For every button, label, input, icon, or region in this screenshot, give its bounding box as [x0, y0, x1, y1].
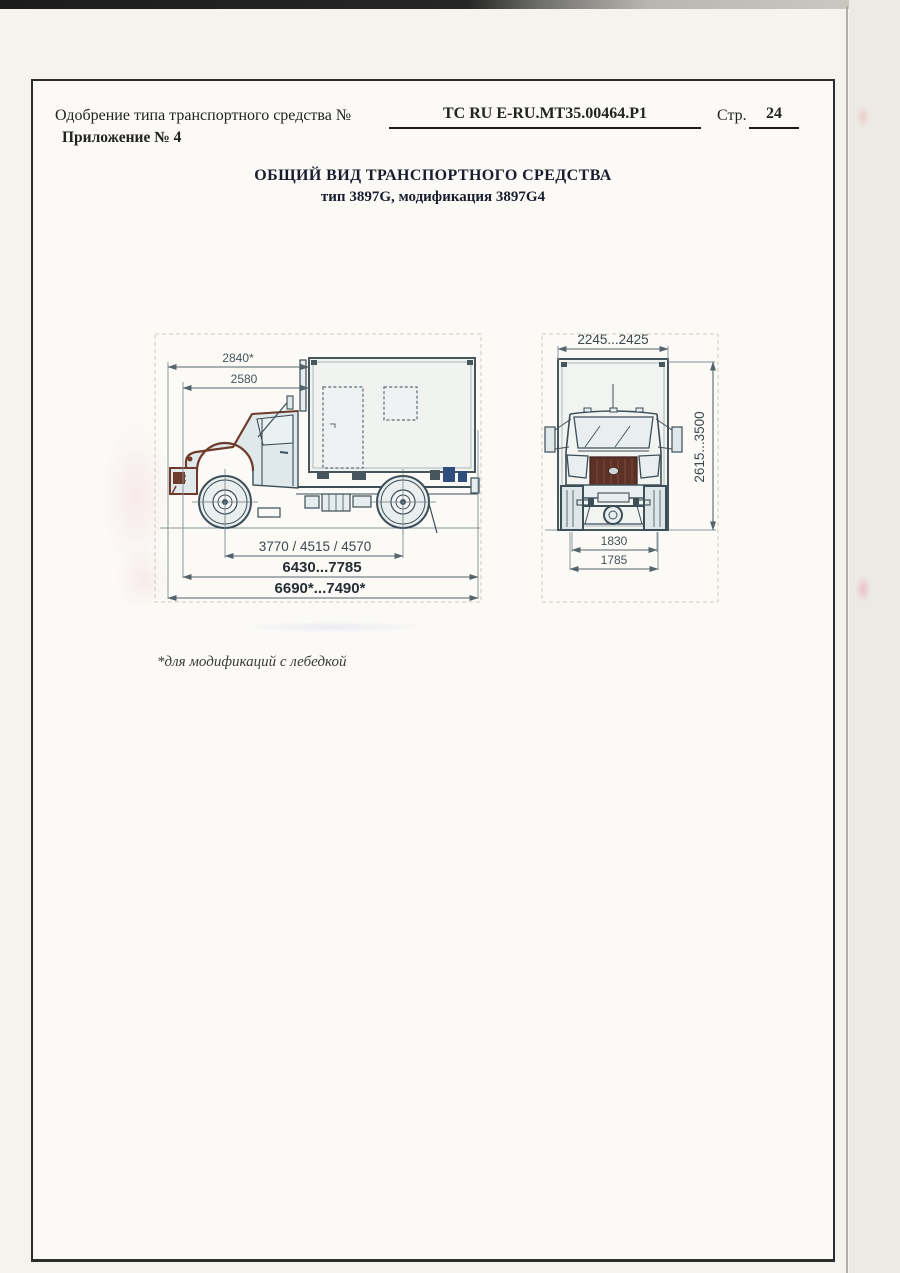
headlight-right	[639, 455, 660, 478]
scan-noise-blob	[238, 621, 428, 633]
dim-wheelbase: 3770 / 4515 / 4570	[259, 539, 372, 554]
differential	[604, 506, 622, 524]
scan-edge-artifact	[0, 0, 900, 9]
windshield	[574, 417, 653, 448]
dim-overall-length: 6430...7785	[282, 559, 361, 576]
dim-cab-to-body-winch: 2840*	[222, 351, 254, 365]
gaz-emblem	[609, 467, 619, 474]
page-label: Стр.	[717, 107, 747, 125]
mirror-left	[545, 427, 555, 452]
rear-equipment-blue	[443, 467, 455, 482]
approval-number: ТС RU E-RU.MT35.00464.P1	[389, 105, 701, 129]
box-window-dashed	[384, 387, 417, 420]
page-subtitle: тип 3897G, модификация 3897G4	[33, 189, 833, 206]
attachment-label: Приложение № 4	[62, 129, 181, 147]
page-title: ОБЩИЙ ВИД ТРАНСПОРТНОГО СРЕДСТВА	[33, 167, 833, 185]
dim-track-outer: 1830	[601, 534, 628, 548]
cab-step	[258, 508, 280, 517]
air-intake-snorkel	[300, 360, 306, 411]
wheel-left	[561, 486, 583, 530]
headlight-left	[567, 455, 588, 478]
box-side-door-dashed	[323, 387, 363, 468]
footnote: *для модификаций с лебедкой	[157, 654, 347, 671]
dim-overall-width: 2245...2425	[577, 332, 648, 347]
dim-cab-to-body: 2580	[231, 372, 258, 386]
wheel-right	[644, 486, 666, 530]
vehicle-drawing: 2840* 2580 3770 / 4515 / 4570 6430...778…	[150, 330, 730, 620]
dim-track: 1785	[601, 553, 628, 567]
dim-overall-height: 2615...3500	[692, 411, 707, 482]
box-body	[309, 358, 475, 472]
approval-label: Одобрение типа транспортного средства №	[55, 107, 351, 125]
mirror-glass	[287, 396, 293, 409]
title-block: ОБЩИЙ ВИД ТРАНСПОРТНОГО СРЕДСТВА тип 389…	[33, 167, 833, 206]
front-view: 2245...2425 2615...3500 1830 1785	[545, 332, 716, 570]
headlamp	[188, 457, 193, 462]
door-handle	[280, 452, 288, 453]
side-view: 2840* 2580 3770 / 4515 / 4570 6430...778…	[160, 351, 480, 599]
scanned-document-page: { "header": { "approval_label": "Одобрен…	[0, 0, 900, 1273]
page-right-margin	[849, 0, 900, 1273]
rear-equipment-blue	[458, 471, 467, 482]
page-number: 24	[749, 105, 799, 129]
document-frame: Одобрение типа транспортного средства № …	[31, 79, 835, 1262]
mirror-right	[672, 427, 682, 452]
page-edge-line	[846, 6, 848, 1273]
dim-overall-length-winch: 6690*...7490*	[275, 580, 366, 597]
